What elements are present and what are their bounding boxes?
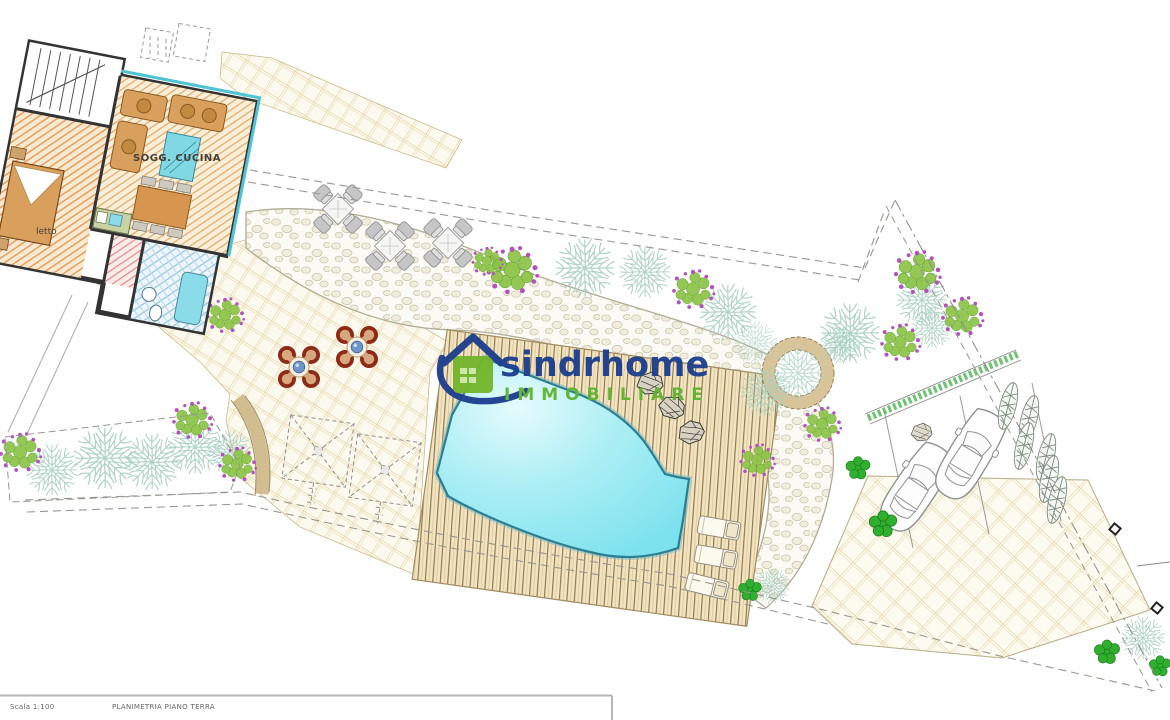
bedroom-label: letto bbox=[36, 227, 57, 237]
brand-wordmark: sindrhome bbox=[500, 345, 709, 385]
ring-planter bbox=[762, 337, 834, 409]
sheet-code: Scala 1:100 bbox=[10, 703, 55, 711]
drawing-title: PLANIMETRIA PIANO TERRA bbox=[112, 703, 215, 711]
site-plan-canvas: SOGG. CUCINA letto sindrhome IMMOBILIARE… bbox=[0, 0, 1170, 720]
living-room-label: SOGG. CUCINA bbox=[133, 153, 221, 164]
brand-subtitle: IMMOBILIARE bbox=[504, 385, 710, 405]
site-plan-drawing: SOGG. CUCINA letto sindrhome IMMOBILIARE… bbox=[0, 0, 1170, 720]
